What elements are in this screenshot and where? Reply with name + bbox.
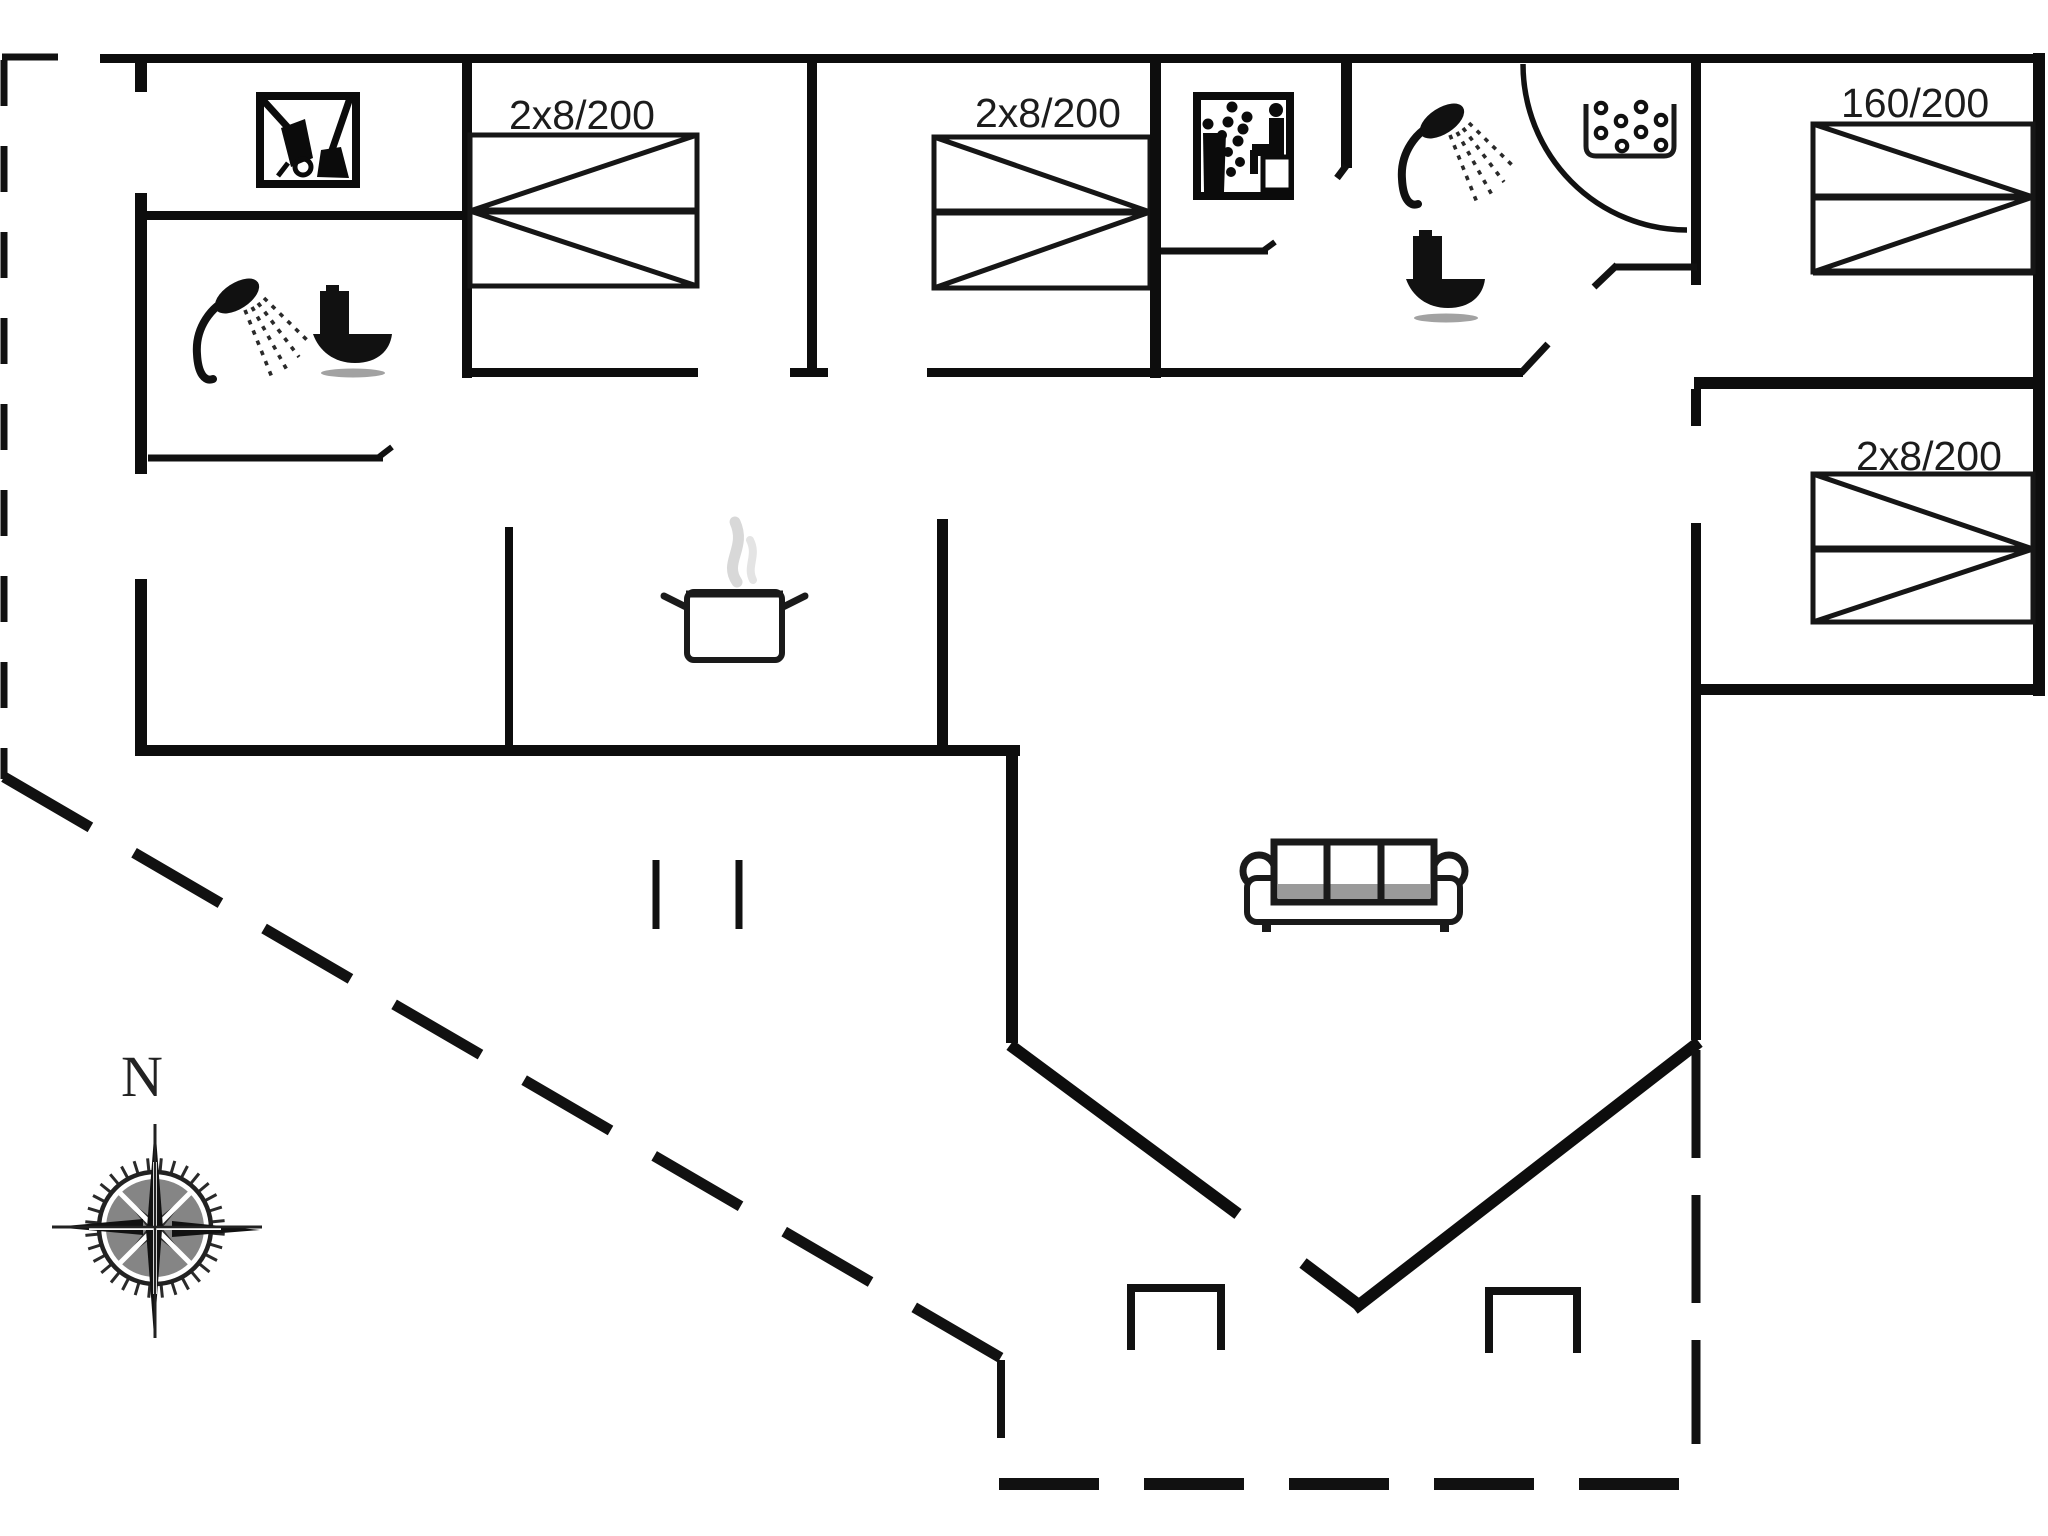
svg-text:2x8/200: 2x8/200 <box>509 92 655 138</box>
svg-text:N: N <box>121 1044 163 1109</box>
svg-text:2x8/200: 2x8/200 <box>975 90 1121 136</box>
svg-text:160/200: 160/200 <box>1841 80 1989 126</box>
